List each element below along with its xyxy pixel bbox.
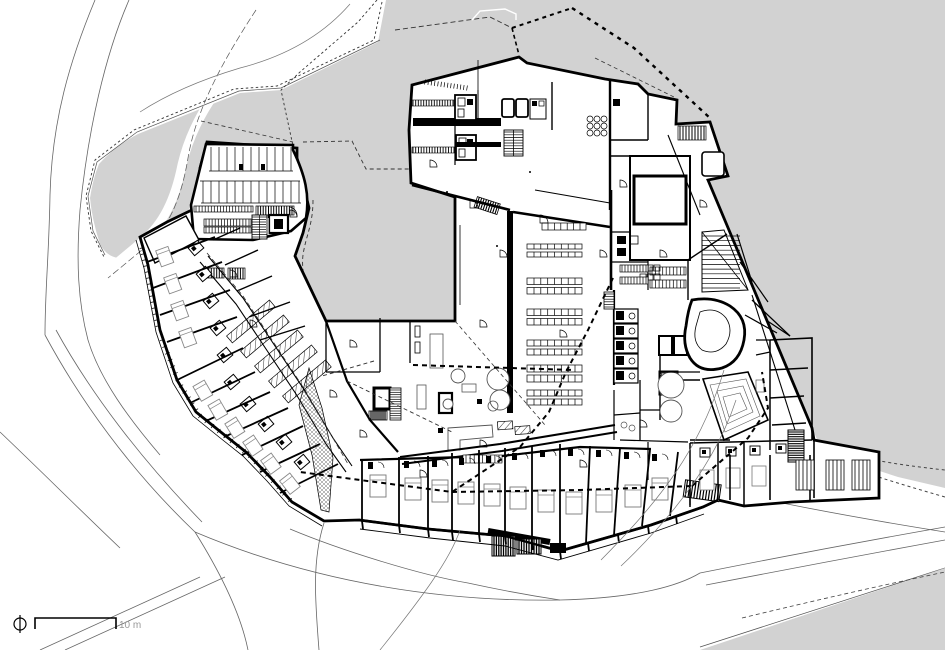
svg-text:10 m: 10 m — [119, 620, 141, 631]
